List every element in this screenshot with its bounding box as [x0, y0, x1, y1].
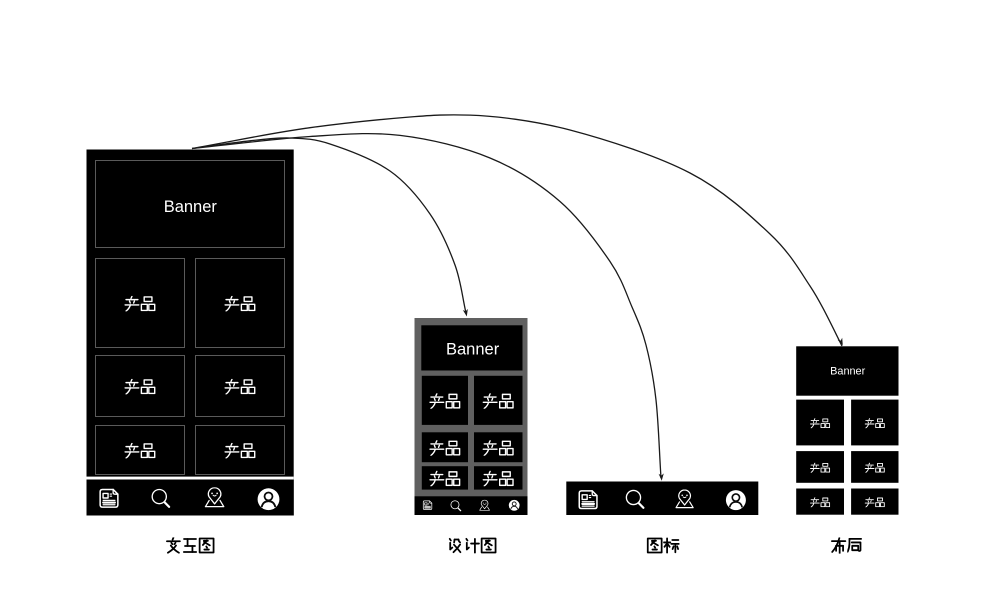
- svg-text:Banner: Banner: [446, 341, 500, 359]
- svg-text:Banner: Banner: [164, 198, 218, 216]
- svg-text:Banner: Banner: [830, 366, 865, 378]
